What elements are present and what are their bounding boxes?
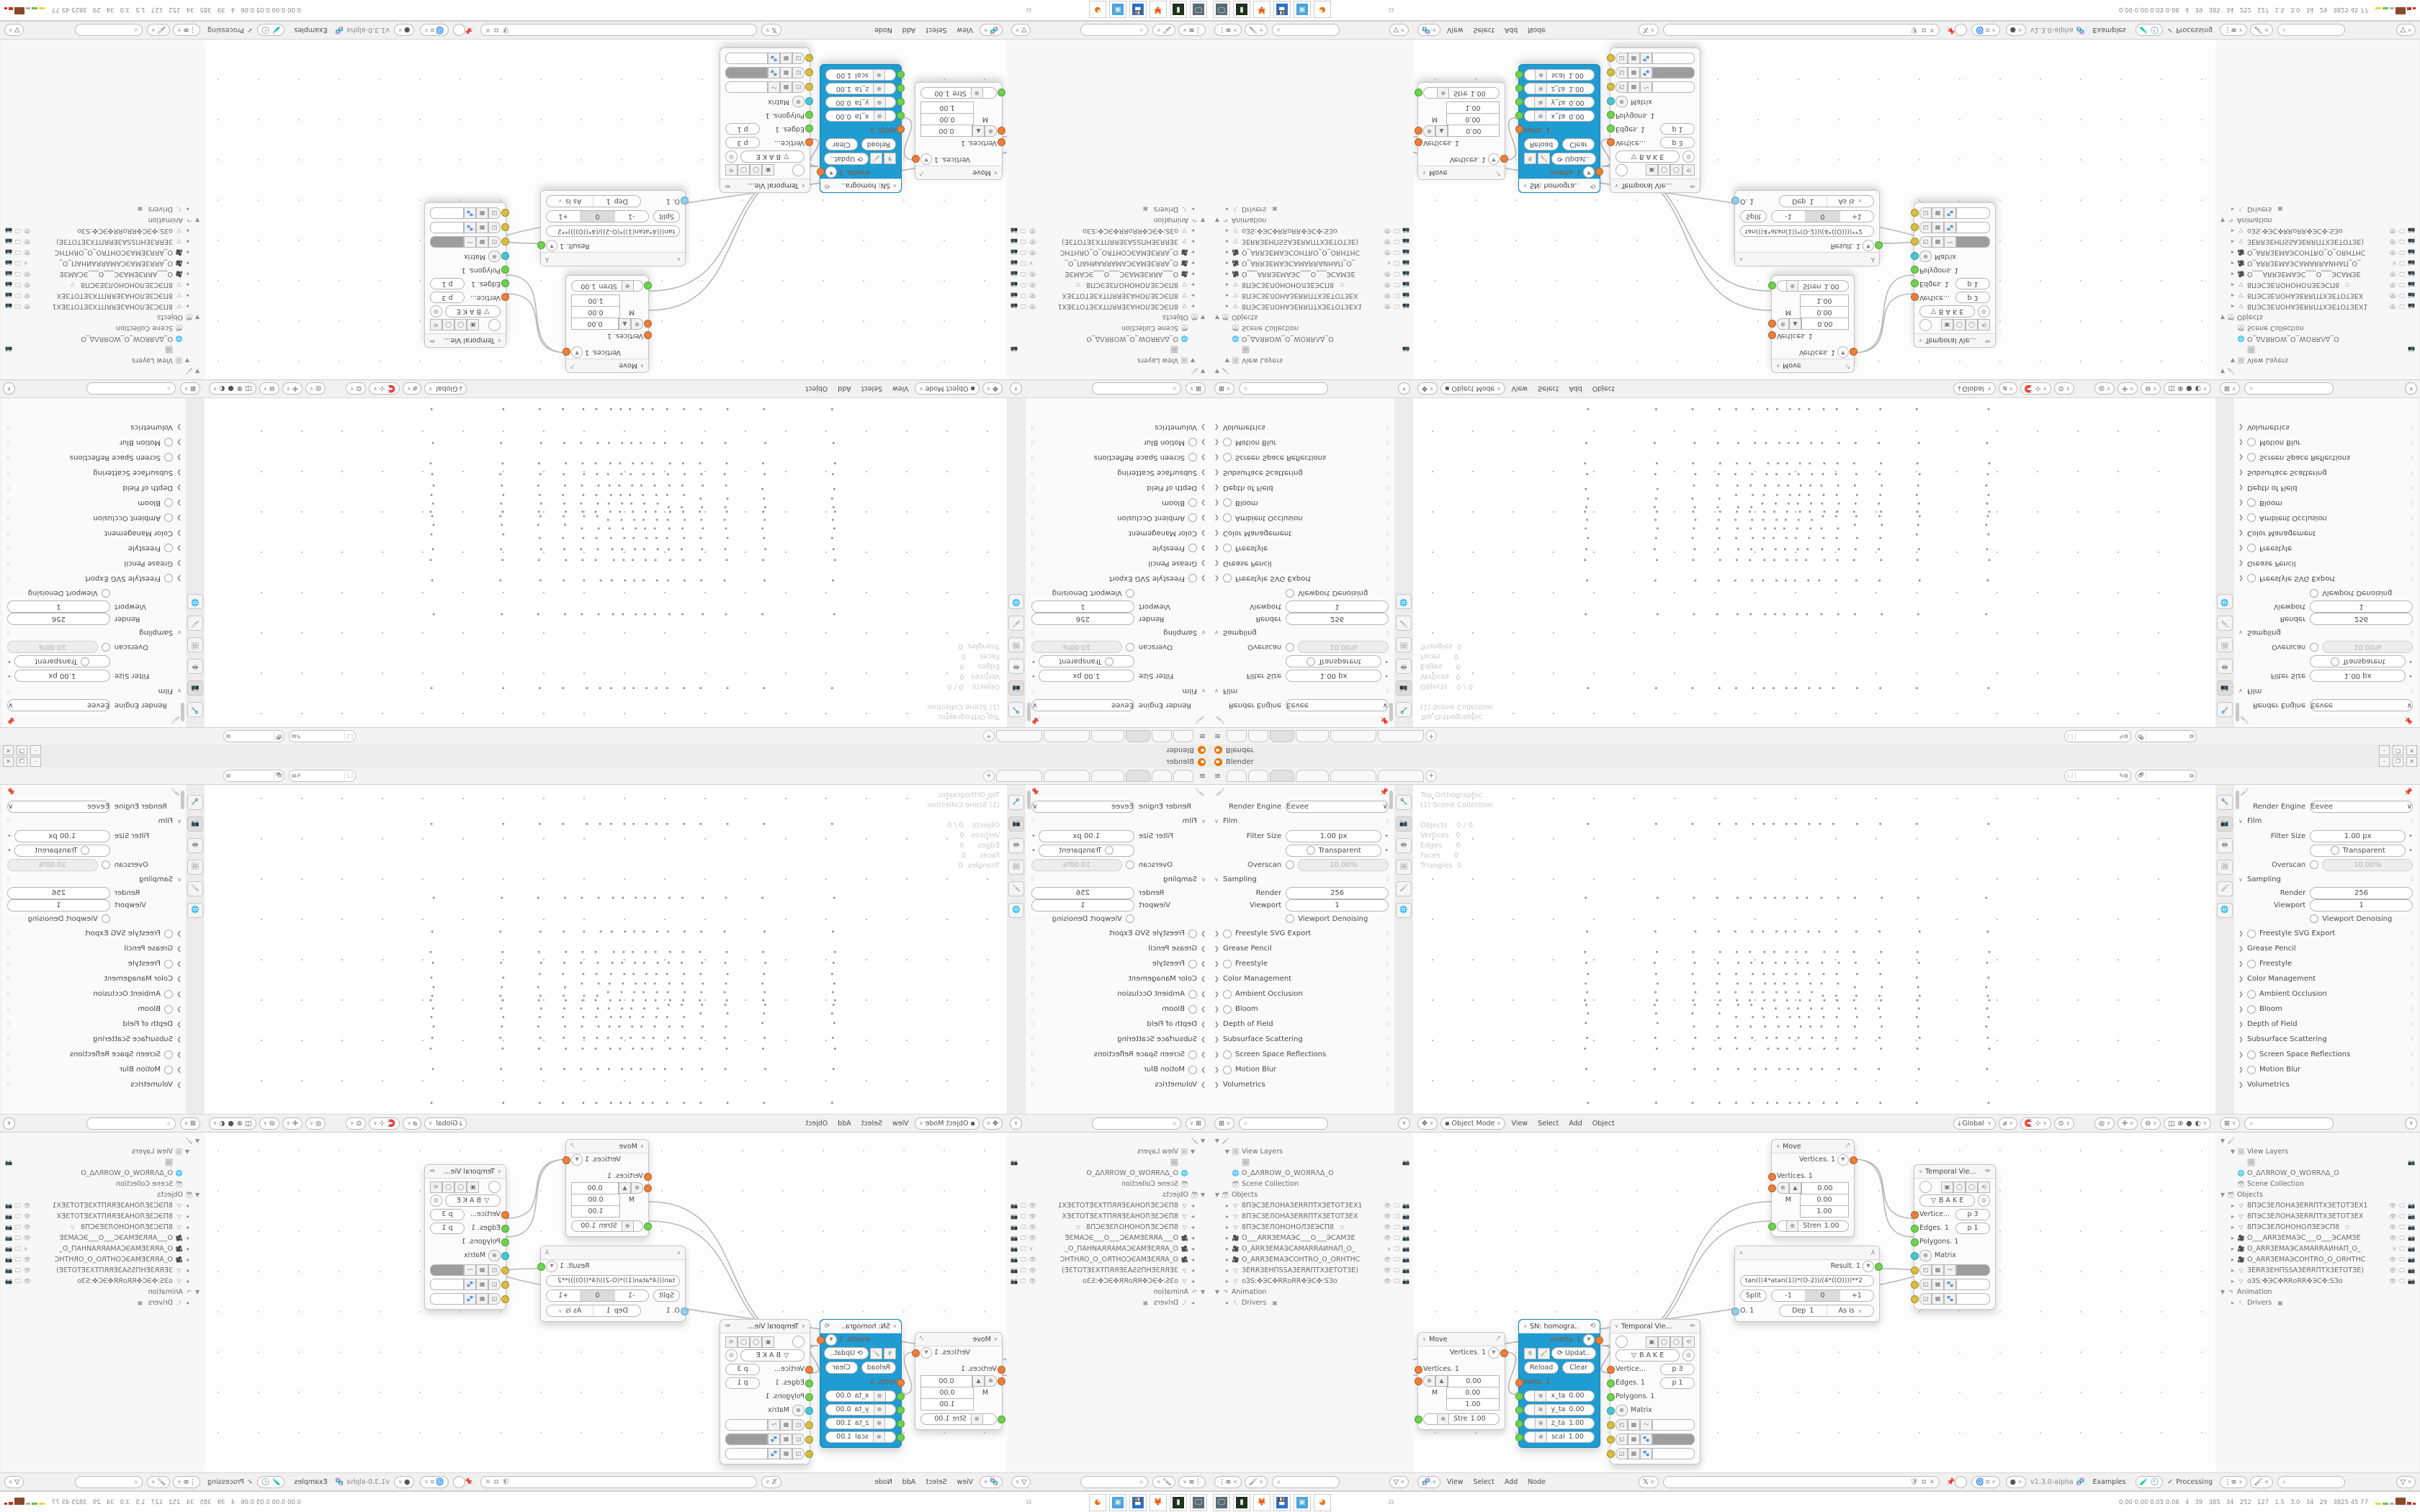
outliner-search-input[interactable]: ⌕ xyxy=(86,1117,176,1130)
prop-section-depth-of-field[interactable]: ❯Depth of Field⠿ xyxy=(2234,480,2419,495)
socket-orange[interactable] xyxy=(1607,139,1615,147)
outliner-row[interactable]: ▼🖌 xyxy=(1,1135,205,1146)
node-menu-node[interactable]: Node xyxy=(874,27,892,35)
workspace-tab-2[interactable] xyxy=(1126,730,1150,742)
overlays-select[interactable]: ✛∨ xyxy=(2117,1117,2138,1130)
camera-toggle-icon[interactable]: 📷 xyxy=(5,271,12,278)
expand-triangle-icon[interactable]: ▸ xyxy=(2228,1213,2237,1220)
camera-toggle-icon[interactable]: 📷 xyxy=(1010,1267,1018,1274)
node-tree-type-select[interactable]: 𝕏∨ xyxy=(761,24,781,37)
outliner-filter-button[interactable]: ∨ xyxy=(2405,1117,2417,1130)
outliner-row[interactable]: ▸▽оЗS:✜ЭС✜RRоRR✜ЭС✜:SЗо👁🖵📷 xyxy=(1007,225,1210,236)
diamond-toggle[interactable]: ⊕ xyxy=(1534,1404,1546,1416)
workspace-tab-0[interactable] xyxy=(1173,730,1193,742)
pattern-icon-button[interactable]: 🐾 xyxy=(1640,53,1652,65)
expand-triangle-icon[interactable]: ▼ xyxy=(2218,1289,2227,1295)
pivot-point-select[interactable]: ⌀∨ xyxy=(1999,383,2017,395)
color-field[interactable] xyxy=(1652,53,1695,65)
eye-toggle-icon[interactable]: 👁 xyxy=(1384,271,1391,278)
eye-toggle-icon[interactable]: 👁 xyxy=(1029,249,1036,256)
screen-toggle-icon[interactable]: 🖵 xyxy=(15,1278,21,1285)
render-engine-select[interactable]: Eevee∨ xyxy=(2310,801,2413,813)
properties-tab-world[interactable]: 🌐 xyxy=(1008,903,1024,918)
properties-tab-view-layer[interactable]: 🖼 xyxy=(1396,637,1412,652)
eye-toggle-icon[interactable]: 👁 xyxy=(24,303,31,310)
section-checkbox[interactable] xyxy=(1223,438,1232,447)
expand-triangle-icon[interactable]: ▸ xyxy=(1188,271,1197,277)
expand-triangle-icon[interactable]: ▸ xyxy=(1188,238,1197,245)
update-button[interactable]: ⟳Updat.. xyxy=(824,153,869,165)
viewport-menu-add[interactable]: Add xyxy=(1569,385,1582,393)
sv-tools-group[interactable]: 🧪🕘 xyxy=(257,1476,285,1488)
eye-toggle-icon[interactable]: 👁 xyxy=(2389,1256,2396,1264)
socket-green[interactable] xyxy=(1515,1434,1523,1441)
outliner-row[interactable]: ▸▽8ПЭСЗЕЛОНАЗЕRRПТХЗЕТОТЗЕХ1👁🖵📷 xyxy=(1,1200,205,1211)
object-mode-select[interactable]: ▪Object Mode∨ xyxy=(915,1117,979,1130)
collapse-icon[interactable]: ∨ xyxy=(640,363,644,369)
properties-tab-render[interactable]: 📷 xyxy=(187,680,203,696)
screen-toggle-icon[interactable]: 🖵 xyxy=(1394,1278,1399,1285)
eye-toggle-icon[interactable]: 👁 xyxy=(1029,282,1036,289)
screen-toggle-icon[interactable]: 🖵 xyxy=(15,271,21,278)
outliner-search-input[interactable]: ⌕ xyxy=(2244,1117,2334,1130)
outliner-row[interactable]: ▼↷Animation xyxy=(2215,215,2419,225)
prop-number-field[interactable]: 1 xyxy=(1031,600,1134,613)
diamond-toggle[interactable]: ⊕ xyxy=(1786,281,1798,292)
properties-tab-scene[interactable]: 🖌 xyxy=(1396,616,1412,631)
expand-triangle-icon[interactable]: ▼ xyxy=(2218,1138,2227,1144)
sverchok-button[interactable]: ⟲ xyxy=(430,320,442,331)
expand-triangle-icon[interactable]: ▼ xyxy=(1223,357,1232,364)
eye-toggle-icon[interactable]: 👁 xyxy=(2389,228,2396,235)
outliner-row[interactable]: ▸▽ЗЕRRЗЕНПSSАЗЕRRПТХЗЕТОТЗЕ)👁🖵📷 xyxy=(1007,236,1210,247)
camera-toggle-icon[interactable]: 📷 xyxy=(2408,1278,2415,1285)
axis-up-icon[interactable]: ▲ xyxy=(1435,125,1448,137)
prop-checkbox[interactable] xyxy=(1105,657,1113,666)
section-checkbox[interactable] xyxy=(1223,454,1232,462)
outliner-search-input[interactable]: ⌕ xyxy=(1239,1117,1328,1130)
color-field[interactable] xyxy=(1956,1279,1990,1290)
prop-checkbox[interactable] xyxy=(2310,589,2318,598)
pattern-icon-button[interactable]: 🐾 xyxy=(1944,1293,1956,1305)
prop-checkbox[interactable] xyxy=(102,860,110,869)
screen-toggle-icon[interactable]: 🖵 xyxy=(1021,1235,1026,1242)
prop-check-pill[interactable]: Transparent xyxy=(1286,845,1381,857)
outliner-row[interactable]: ▼🖼View Layers xyxy=(1,355,205,366)
screen-toggle-icon[interactable]: 🖵 xyxy=(1394,238,1399,246)
outliner-filter-button[interactable]: ∨ xyxy=(1010,383,1022,395)
socket-orange[interactable] xyxy=(1595,1336,1603,1344)
collapse-icon[interactable]: ∨ xyxy=(994,1336,998,1342)
expand-triangle-icon[interactable]: ▸ xyxy=(2228,1246,2237,1252)
palette-icon-button[interactable]: ▦ xyxy=(476,1279,488,1290)
screen-toggle-icon[interactable]: 🖵 xyxy=(2399,260,2405,267)
pivot-point-select[interactable]: ⌀∨ xyxy=(403,383,421,395)
swatch-icon-button[interactable]: ◲ xyxy=(1615,1448,1628,1459)
dep-mode-group[interactable]: Dep1As is∨ xyxy=(1779,1305,1874,1317)
prop-section-film[interactable]: ∨Film⠿ xyxy=(1,683,186,698)
cube-button[interactable]: ▣ xyxy=(1941,320,1953,331)
node-sn-homogra[interactable]: ∨SN: homogra..⟲everts. 1▼↯🖌⟳Updat..Reloa… xyxy=(1518,1319,1600,1448)
eye-toggle-icon[interactable]: 👁 xyxy=(2389,292,2396,300)
prop-value-field[interactable]: 10.00% xyxy=(7,859,98,871)
swatch-icon-button[interactable]: ◰ xyxy=(792,82,805,94)
eye-toggle-icon[interactable]: 👁 xyxy=(24,1202,31,1210)
prop-section-volumetrics[interactable]: ❯Volumetrics⠿ xyxy=(1210,1077,1394,1092)
properties-tab-world[interactable]: 🌐 xyxy=(2217,594,2233,609)
outliner-row[interactable]: ▼🗃Objects xyxy=(2215,312,2419,323)
screen-toggle-icon[interactable]: 🖵 xyxy=(1021,292,1026,300)
workspace-tab-5[interactable] xyxy=(1378,770,1424,782)
scrollbar-thumb[interactable] xyxy=(2236,703,2239,721)
sverchok-button[interactable]: ⟲ xyxy=(1978,320,1990,331)
prop-checkbox[interactable] xyxy=(102,589,110,598)
fake-user-shield-icon[interactable]: 🛡 xyxy=(1910,27,1919,35)
taskbar-icon-floppy-64[interactable]: 💾 xyxy=(1273,1494,1291,1511)
diamond-toggle[interactable]: ⊕ xyxy=(1534,111,1546,122)
prop-section-grease-pencil[interactable]: ❯Grease Pencil⠿ xyxy=(2234,556,2419,571)
shading-mode-group[interactable]: ◫⊕●◐∨ xyxy=(2164,1117,2211,1130)
prop-section-motion-blur[interactable]: ❯Motion Blur⠿ xyxy=(1026,435,1210,450)
prop-section-bloom[interactable]: ❯Bloom⠿ xyxy=(1,1002,186,1017)
outliner-display-select[interactable]: 🖌∨ xyxy=(2250,24,2273,37)
node-formula[interactable]: ∨⅄Result. 1▼tan(((4*atan(1))*(O-2))/(4*(… xyxy=(1734,190,1880,266)
node-header[interactable]: ∨Move⤤ xyxy=(566,1140,648,1153)
outliner-row[interactable]: ▸▽8ПЭСЗЕЛОНОНОЛЗЕЭСП8▽👁🖵📷 xyxy=(1,279,205,290)
outliner-row[interactable]: 🖼📷 xyxy=(2215,1157,2419,1168)
circle2-button[interactable]: ◯ xyxy=(442,320,454,331)
expand-triangle-icon[interactable]: ▼ xyxy=(1213,314,1222,320)
outliner-row[interactable]: ▸🎥O___АRRЗЕМАЭС___O___ЭСАМЗЕ👁🖵📷 xyxy=(1210,269,1413,279)
proportional-editing-select[interactable]: ⊙∨ xyxy=(346,1117,366,1130)
brush-icon-button[interactable]: 🖌 xyxy=(1538,1348,1550,1359)
prop-section-screen-space-reflections[interactable]: ❯Screen Space Reflections⠿ xyxy=(1,1047,186,1062)
viewport-menu-view[interactable]: View xyxy=(892,385,909,393)
render-engine-select[interactable]: Eevee∨ xyxy=(1286,700,1389,712)
circle1-button[interactable]: ◯ xyxy=(454,320,467,331)
expand-triangle-icon[interactable]: ▸ xyxy=(1223,249,1232,256)
swatch-icon-button[interactable]: ◰ xyxy=(488,237,501,248)
formula-input[interactable]: tan(((4*atan(1))*(O-2))/(4*((O))))**2 xyxy=(546,226,680,238)
color-field[interactable] xyxy=(430,208,464,220)
expand-triangle-icon[interactable]: ▸ xyxy=(183,1213,192,1220)
section-checkbox[interactable] xyxy=(1188,930,1197,938)
outliner-display-mode-select[interactable]: ⊞∨ xyxy=(1214,383,1234,395)
outliner-row[interactable]: ▸▽8ПЭСЗЕЛОНАЗЕRRПТХЗЕТОТЗЕХ1👁🖵📷 xyxy=(1210,1200,1413,1211)
outliner-row[interactable]: ▸🎥O_АRRЗЕМАЭСОНТRО_O_ОRНТНС👁🖵📷 xyxy=(1007,1254,1210,1265)
screen-toggle-icon[interactable]: 🖵 xyxy=(15,292,21,300)
circle1-button[interactable]: ◯ xyxy=(1953,320,1966,331)
prop-value-field[interactable]: 10.00% xyxy=(2322,859,2413,871)
socket-green[interactable] xyxy=(1415,89,1422,97)
vec-value-field[interactable]: 1.00 xyxy=(571,1205,620,1218)
expand-triangle-icon[interactable]: ▸ xyxy=(2228,260,2237,266)
section-checkbox[interactable] xyxy=(2247,514,2256,523)
prop-section-depth-of-field[interactable]: ❯Depth of Field⠿ xyxy=(1,1017,186,1032)
diamond-toggle[interactable]: ⊕ xyxy=(985,1375,997,1387)
xray-toggle[interactable]: ⊖∨ xyxy=(2141,1117,2161,1130)
properties-tab-view-layer[interactable]: 🖼 xyxy=(1396,860,1412,875)
palette-icon-button[interactable]: ▦ xyxy=(1628,82,1640,94)
socket-green[interactable] xyxy=(1515,1420,1523,1428)
diamond-toggle[interactable]: ⊕ xyxy=(873,1431,885,1443)
sv-theme-select[interactable]: ●∨ xyxy=(2006,1476,2026,1488)
expand-triangle-icon[interactable]: ▸ xyxy=(2228,1202,2237,1209)
restore-button[interactable]: ❐ xyxy=(2393,745,2403,755)
screen-toggle-icon[interactable]: 🖵 xyxy=(15,1235,21,1242)
output-dropdown[interactable]: ▼ xyxy=(571,1154,583,1166)
socket-yellow[interactable] xyxy=(1911,1295,1919,1303)
outliner-row[interactable]: ▸🎥O___АRRЗЕМАЭС___O___ЭСАМЗЕ👁🖵📷 xyxy=(2215,269,2419,279)
output-dropdown[interactable]: ▼ xyxy=(1488,1347,1500,1359)
node-sn-homogra[interactable]: ∨SN: homogra..⟲everts. 1▼↯🖌⟳Updat..Reloa… xyxy=(1518,64,1600,193)
prop-checkbox[interactable] xyxy=(2310,860,2318,869)
swatch-icon-button[interactable]: ◰ xyxy=(1919,1264,1932,1276)
swatch-icon-button[interactable]: ◰ xyxy=(1615,1419,1628,1431)
taskbar-icon-firefox[interactable]: 🦊 xyxy=(1253,1,1270,19)
prop-section-subsurface-scattering[interactable]: ❯Subsurface Scattering⠿ xyxy=(2234,465,2419,480)
input-count-pill[interactable]: p 3 xyxy=(1660,1364,1695,1375)
taskbar-icon-blender[interactable]: ◕ xyxy=(1314,1,1331,19)
eye-toggle-icon[interactable]: 👁 xyxy=(2389,303,2396,310)
socket-green[interactable] xyxy=(1515,85,1523,93)
node-menu-add[interactable]: Add xyxy=(902,1478,915,1486)
screen-toggle-icon[interactable]: 🖵 xyxy=(2399,1213,2405,1220)
outliner-row[interactable]: ▸▽8ПЭСЗЕЛОНАЗЕRRПТХЗЕТОТЗЕХ👁🖵📷 xyxy=(1007,290,1210,301)
expand-triangle-icon[interactable]: ▸ xyxy=(1188,1202,1197,1209)
screen-toggle-icon[interactable]: 🖵 xyxy=(1394,1213,1399,1220)
node-formula[interactable]: ∨⅄Result. 1▼tan(((4*atan(1))*(O-2))/(4*(… xyxy=(540,190,686,266)
socket-orange[interactable] xyxy=(644,1173,652,1181)
prop-value-field[interactable]: 10.00% xyxy=(1298,642,1389,654)
outliner-filter-button[interactable]: ∨ xyxy=(2405,383,2417,395)
camera-toggle-icon[interactable]: 📷 xyxy=(5,1278,12,1285)
screen-toggle-icon[interactable]: 🖵 xyxy=(2399,303,2405,310)
eye-toggle-icon[interactable]: 👁 xyxy=(24,1235,31,1242)
screen-toggle-icon[interactable]: 🖵 xyxy=(2399,238,2405,246)
node-tree-type-select[interactable]: 𝕏∨ xyxy=(761,1476,781,1488)
socket-yellow[interactable] xyxy=(805,1421,813,1429)
section-checkbox[interactable] xyxy=(1223,990,1232,999)
swatch-icon-button[interactable]: ◰ xyxy=(1919,237,1932,248)
palette-icon-button[interactable]: ▦ xyxy=(1932,1279,1944,1290)
processing-toggle[interactable]: Processing xyxy=(207,1478,244,1486)
outliner-row[interactable]: ▸▽8ПЭСЗЕЛОНОНОЛЗЕЭСП8▽👁🖵📷 xyxy=(2215,1222,2419,1233)
outliner-display-mode-select[interactable]: ⊞∨ xyxy=(180,1117,200,1130)
node-header[interactable]: ∨SN: homogra..⟲ xyxy=(820,1320,901,1333)
eye-toggle-icon[interactable]: 👁 xyxy=(2389,1213,2396,1220)
palette-icon-button[interactable]: ▦ xyxy=(780,68,792,79)
properties-tab-scene[interactable]: 🖌 xyxy=(1008,881,1024,896)
prop-value-field[interactable]: 10.00% xyxy=(1031,642,1122,654)
socket-yellow[interactable] xyxy=(1911,1266,1919,1274)
socket-orange[interactable] xyxy=(805,1366,813,1374)
filter-funnel-button[interactable]: ▽∨ xyxy=(1389,24,1409,37)
axis-up-icon[interactable]: ▲ xyxy=(1789,318,1801,330)
scrollbar-thumb[interactable] xyxy=(181,703,184,721)
outliner-editor-type-select[interactable]: ⋮≡∨ xyxy=(1178,1476,1206,1488)
outliner-editor-type-select[interactable]: ⋮≡∨ xyxy=(1214,1476,1242,1488)
pattern-icon-button[interactable]: 🐾 xyxy=(768,1448,780,1459)
cube-button[interactable]: ▣ xyxy=(467,1182,479,1193)
node-header[interactable]: ∨Move⤤ xyxy=(1772,1140,1854,1153)
eye-toggle-icon[interactable]: 👁 xyxy=(24,282,31,289)
segment[interactable]: -1 xyxy=(1772,211,1805,222)
node-sn-homogra[interactable]: ∨SN: homogra..⟲everts. 1▼↯🖌⟳Updat..Reloa… xyxy=(820,1319,902,1448)
properties-tab-world[interactable]: 🌐 xyxy=(187,903,203,918)
section-checkbox[interactable] xyxy=(2247,1005,2256,1014)
expand-triangle-icon[interactable]: ▼ xyxy=(193,1289,202,1295)
camera-toggle-icon[interactable]: 📷 xyxy=(5,1202,12,1210)
palette-icon-button[interactable]: ▦ xyxy=(476,222,488,234)
camera-toggle-icon[interactable]: 📷 xyxy=(2408,346,2415,353)
properties-tab-tool[interactable]: 🔧 xyxy=(1008,795,1024,810)
screen-toggle-icon[interactable]: 🖵 xyxy=(1394,1256,1399,1264)
workspace-tab-3[interactable] xyxy=(1091,730,1124,742)
outliner-search-input[interactable]: ⌕ xyxy=(1272,1476,1340,1488)
taskbar-icon-screenshot-tool[interactable]: 🖵 xyxy=(1213,1494,1230,1511)
render-engine-select[interactable]: Eevee∨ xyxy=(1286,801,1389,813)
prop-section-ambient-occlusion[interactable]: ❯Ambient Occlusion⠿ xyxy=(1,510,186,526)
camera-toggle-icon[interactable]: 📷 xyxy=(5,292,12,300)
output-dropdown[interactable]: ▼ xyxy=(1837,347,1849,359)
section-checkbox[interactable] xyxy=(164,960,173,968)
screen-toggle-icon[interactable]: 🖵 xyxy=(1021,1267,1026,1274)
editor-type-select[interactable]: ✥∨ xyxy=(982,383,1003,395)
outliner-row[interactable]: ▸▽8ПЭСЗЕЛОНОНОЛЗЕЭСП8▽👁🖵📷 xyxy=(1,1222,205,1233)
workspace-tab-4[interactable] xyxy=(1330,770,1376,782)
collapse-icon[interactable]: ∨ xyxy=(1739,256,1743,262)
socket-orange[interactable] xyxy=(563,1156,570,1164)
unlink-icon[interactable]: ✕ xyxy=(1929,1478,1935,1486)
screen-toggle-icon[interactable]: 🖵 xyxy=(1394,228,1399,235)
eye-toggle-icon[interactable]: 👁 xyxy=(24,1267,31,1274)
socket-green[interactable] xyxy=(897,1434,905,1441)
segment[interactable]: +1 xyxy=(1839,211,1873,222)
socket-orange[interactable] xyxy=(1415,127,1422,135)
socket-yellow[interactable] xyxy=(501,1281,509,1289)
section-checkbox[interactable] xyxy=(1223,575,1232,583)
color-field[interactable] xyxy=(430,222,464,234)
socket-orange[interactable] xyxy=(1768,1173,1776,1181)
brush-icon-button[interactable]: 🖌 xyxy=(870,1348,882,1359)
workspace-tab-5[interactable] xyxy=(996,730,1042,742)
taskbar-icon-screenshot-tool[interactable]: 🖵 xyxy=(1190,1,1207,19)
outliner-row[interactable]: ▸🎥O_АRRЗЕМАЭСАМАRRАИНАП_O_∨🖵📷 xyxy=(1007,1243,1210,1254)
properties-tab-world[interactable]: 🌐 xyxy=(2217,903,2233,918)
camera-toggle-icon[interactable]: 📷 xyxy=(5,1159,12,1166)
input-count-pill[interactable]: p 1 xyxy=(1955,1223,1990,1234)
outliner-editor-type-select[interactable]: ⋮≡∨ xyxy=(2220,1476,2247,1488)
prop-section-ambient-occlusion[interactable]: ❯Ambient Occlusion⠿ xyxy=(1,986,186,1002)
outliner-search-input[interactable]: ⌕ xyxy=(1092,1117,1181,1130)
outliner-row[interactable]: 🗃Scene Collection xyxy=(1007,323,1210,333)
visibility-circle-button[interactable] xyxy=(792,164,805,176)
socket-blue[interactable] xyxy=(681,1308,689,1315)
diamond-toggle[interactable]: ⊕ xyxy=(985,125,997,137)
filter-funnel-button[interactable]: ▽∨ xyxy=(4,1476,24,1488)
expand-triangle-icon[interactable]: ▸ xyxy=(183,1267,192,1274)
outliner-editor-type-select[interactable]: ⋮≡∨ xyxy=(1214,24,1242,37)
proportional-editing-select[interactable]: ⊙∨ xyxy=(2054,383,2074,395)
socket-cyan[interactable] xyxy=(1607,98,1615,106)
node-header[interactable]: ∨Temporal Vie...✏ xyxy=(720,1320,810,1333)
strength-field[interactable]: ⊕Stren1.00 xyxy=(571,281,643,292)
segment-active[interactable]: 0 xyxy=(581,211,614,222)
socket-green[interactable] xyxy=(897,1420,905,1428)
viewport-menu-add[interactable]: Add xyxy=(838,385,851,393)
swatch-icon-button[interactable]: ◲ xyxy=(792,1448,805,1459)
socket-orange[interactable] xyxy=(998,1377,1005,1385)
properties-tab-output[interactable]: 🖶 xyxy=(1008,838,1024,853)
menu-hamburger-icon[interactable]: ≡ xyxy=(1214,732,1221,741)
outliner-row[interactable]: ▸▽8ПЭСЗЕЛОНАЗЕRRПТХЗЕТОТЗЕХ👁🖵📷 xyxy=(1007,1211,1210,1222)
screen-toggle-icon[interactable]: 🖵 xyxy=(2399,1256,2405,1264)
palette-icon-button[interactable]: ▦ xyxy=(780,1448,792,1459)
socket-orange[interactable] xyxy=(817,1336,825,1344)
outliner-row[interactable]: 🗃Scene Collection xyxy=(1210,1179,1413,1189)
overlays-select[interactable]: ✛∨ xyxy=(282,1117,302,1130)
prop-section-motion-blur[interactable]: ❯Motion Blur⠿ xyxy=(2234,1062,2419,1077)
expand-triangle-icon[interactable]: ▸ xyxy=(183,1278,192,1284)
diamond-toggle[interactable]: ⊕ xyxy=(1535,1418,1547,1429)
collapse-icon[interactable]: ∨ xyxy=(1422,170,1426,176)
screen-toggle-icon[interactable]: 🖵 xyxy=(1021,271,1026,278)
eye-toggle-icon[interactable]: 👁 xyxy=(1384,1224,1391,1231)
eye-toggle-icon[interactable]: 👁 xyxy=(1029,1278,1036,1285)
add-workspace-button[interactable]: + xyxy=(983,731,995,742)
camera-toggle-icon[interactable]: 📷 xyxy=(1402,260,1410,267)
sverchok-button[interactable]: ⟲ xyxy=(725,1336,738,1348)
bake-button[interactable]: ▽B A K E xyxy=(740,150,805,163)
expand-triangle-icon[interactable]: ▼ xyxy=(1213,1138,1222,1144)
expand-triangle-icon[interactable]: ▸ xyxy=(2228,1235,2237,1241)
palette-icon-button[interactable]: ▦ xyxy=(476,208,488,220)
prop-section-motion-blur[interactable]: ❯Motion Blur⠿ xyxy=(1210,435,1394,450)
socket-yellow[interactable] xyxy=(1607,1436,1615,1444)
workspace-tab-3[interactable] xyxy=(1091,770,1124,782)
outliner-row[interactable]: ▼↷Animation xyxy=(1,215,205,225)
expand-triangle-icon[interactable]: ▼ xyxy=(193,217,202,223)
eye-toggle-icon[interactable]: 👁 xyxy=(1384,1267,1391,1274)
outliner-row[interactable]: ▸🎥O_АRRЗЕМАЭСАМАRRАИНАП_O_∨🖵📷 xyxy=(2215,258,2419,269)
outliner-display-select[interactable]: 🖌∨ xyxy=(1152,24,1175,37)
swatch-icon-button[interactable]: ◱ xyxy=(1919,1279,1932,1290)
viewport-menu-object[interactable]: Object xyxy=(1592,1120,1615,1128)
properties-tab-render[interactable]: 📷 xyxy=(1396,680,1412,696)
copy-icon[interactable]: ⧉ xyxy=(1922,1478,1927,1486)
cube-button[interactable]: ▣ xyxy=(1646,165,1658,176)
outliner-row[interactable]: ▸🎥O_АRRЗЕМАЭСАМАRRАИНАП_O_∨🖵📷 xyxy=(1,258,205,269)
visibility-circle-button[interactable] xyxy=(792,1336,805,1348)
sn-number-field[interactable]: ⊕x_ta0.00 xyxy=(1524,111,1595,122)
node-sn-homogra[interactable]: ∨SN: homogra..⟲everts. 1▼↯🖌⟳Updat..Reloa… xyxy=(820,64,902,193)
prop-number-field[interactable]: 1 xyxy=(7,600,110,613)
overlays-select[interactable]: ✛∨ xyxy=(2117,383,2138,395)
strength-field[interactable]: ⊕Stren1.00 xyxy=(1777,1220,1849,1232)
expand-triangle-icon[interactable]: ▸ xyxy=(183,1224,192,1230)
section-checkbox[interactable] xyxy=(164,438,173,447)
axis-up-icon[interactable]: ▲ xyxy=(972,1375,985,1387)
camera-toggle-icon[interactable]: 📷 xyxy=(2408,1159,2415,1166)
outliner-editor-type-select[interactable]: ⋮≡∨ xyxy=(1178,24,1206,37)
prop-section-bloom[interactable]: ❯Bloom⠿ xyxy=(1210,495,1394,510)
screen-toggle-icon[interactable]: 🖵 xyxy=(1021,249,1026,256)
outliner-row[interactable]: ▸▽8ПЭСЗЕЛОНАЗЕRRПТХЗЕТОТЗЕХ1👁🖵📷 xyxy=(2215,1200,2419,1211)
vec-value-field[interactable]: 0.00 xyxy=(1448,125,1500,138)
prop-value-field[interactable]: 1.00 px xyxy=(2310,670,2406,683)
camera-toggle-icon[interactable]: 📷 xyxy=(1402,271,1410,278)
